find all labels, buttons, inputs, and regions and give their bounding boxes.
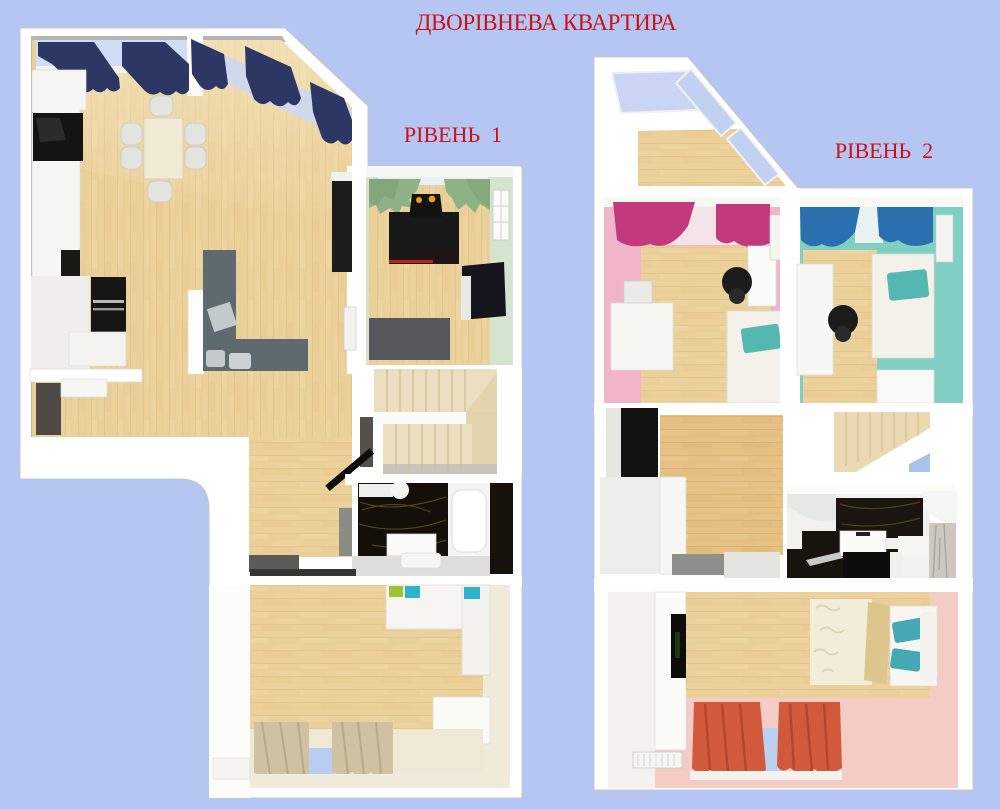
svg-text:РІВЕНЬ 1: РІВЕНЬ 1 bbox=[404, 122, 502, 147]
svg-text:РІВЕНЬ 2: РІВЕНЬ 2 bbox=[835, 138, 933, 163]
svg-text:ДВОРІВНЕВА КВАРТИРА: ДВОРІВНЕВА КВАРТИРА bbox=[416, 10, 677, 35]
